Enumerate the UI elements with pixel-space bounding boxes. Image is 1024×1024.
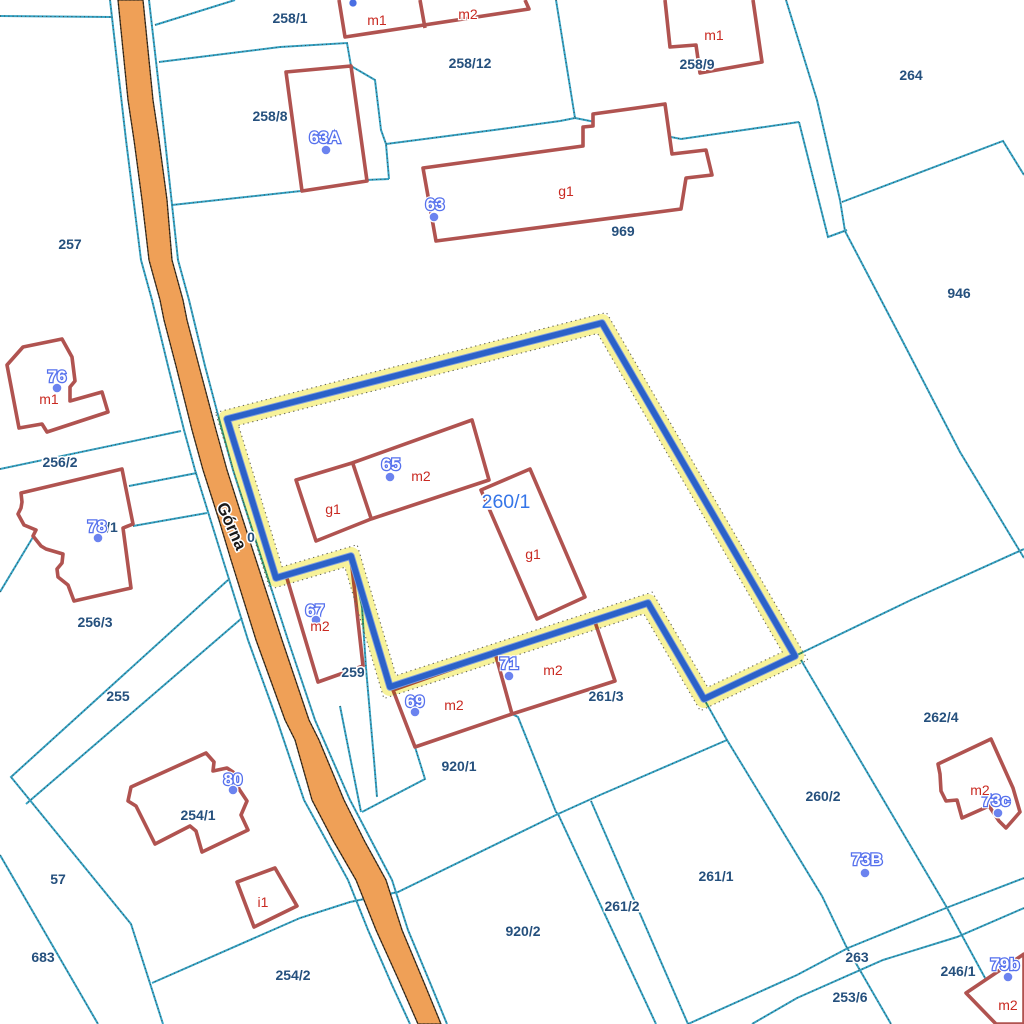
svg-text:264: 264 [899,67,923,83]
svg-text:256/2: 256/2 [42,454,77,470]
svg-text:260/2: 260/2 [805,788,840,804]
svg-text:g1: g1 [558,183,574,199]
svg-text:m2: m2 [444,697,464,713]
svg-text:246/1: 246/1 [940,963,975,979]
svg-text:920/1: 920/1 [441,758,476,774]
svg-text:g1: g1 [325,501,341,517]
svg-text:m2: m2 [411,468,431,484]
svg-text:m2: m2 [458,6,478,22]
svg-text:m2: m2 [998,997,1018,1013]
svg-text:i1: i1 [258,894,269,910]
svg-text:57: 57 [50,871,66,887]
svg-text:m1: m1 [39,391,59,407]
svg-text:/1: /1 [106,519,118,535]
svg-text:g1: g1 [525,546,541,562]
svg-text:683: 683 [31,949,55,965]
svg-text:63: 63 [426,195,445,214]
svg-text:260/1: 260/1 [482,491,531,513]
svg-text:261/2: 261/2 [604,898,639,914]
svg-text:254/2: 254/2 [275,967,310,983]
svg-text:258/8: 258/8 [252,108,287,124]
svg-text:258/12: 258/12 [449,55,492,71]
svg-text:261/1: 261/1 [698,868,733,884]
svg-text:946: 946 [947,285,971,301]
svg-text:259: 259 [341,664,365,680]
svg-text:262/4: 262/4 [923,709,958,725]
svg-text:79b: 79b [990,955,1019,974]
svg-text:73B: 73B [851,850,882,869]
svg-text:920/2: 920/2 [505,923,540,939]
svg-text:254/1: 254/1 [180,807,215,823]
svg-text:969: 969 [611,223,635,239]
svg-text:258/1: 258/1 [272,10,307,26]
svg-text:257: 257 [58,236,82,252]
svg-text:263: 263 [845,949,869,965]
svg-text:m1: m1 [704,27,724,43]
svg-text:261/3: 261/3 [588,688,623,704]
svg-text:m2: m2 [543,662,563,678]
svg-text:253/6: 253/6 [832,989,867,1005]
svg-text:m2: m2 [970,782,990,798]
svg-text:0: 0 [247,529,255,545]
svg-text:255: 255 [106,688,130,704]
svg-text:71: 71 [500,654,519,673]
svg-text:63A: 63A [309,128,340,147]
svg-text:256/3: 256/3 [77,614,112,630]
svg-text:m2: m2 [310,618,330,634]
svg-text:m1: m1 [367,12,387,28]
svg-text:65: 65 [382,455,401,474]
svg-text:258/9: 258/9 [679,56,714,72]
